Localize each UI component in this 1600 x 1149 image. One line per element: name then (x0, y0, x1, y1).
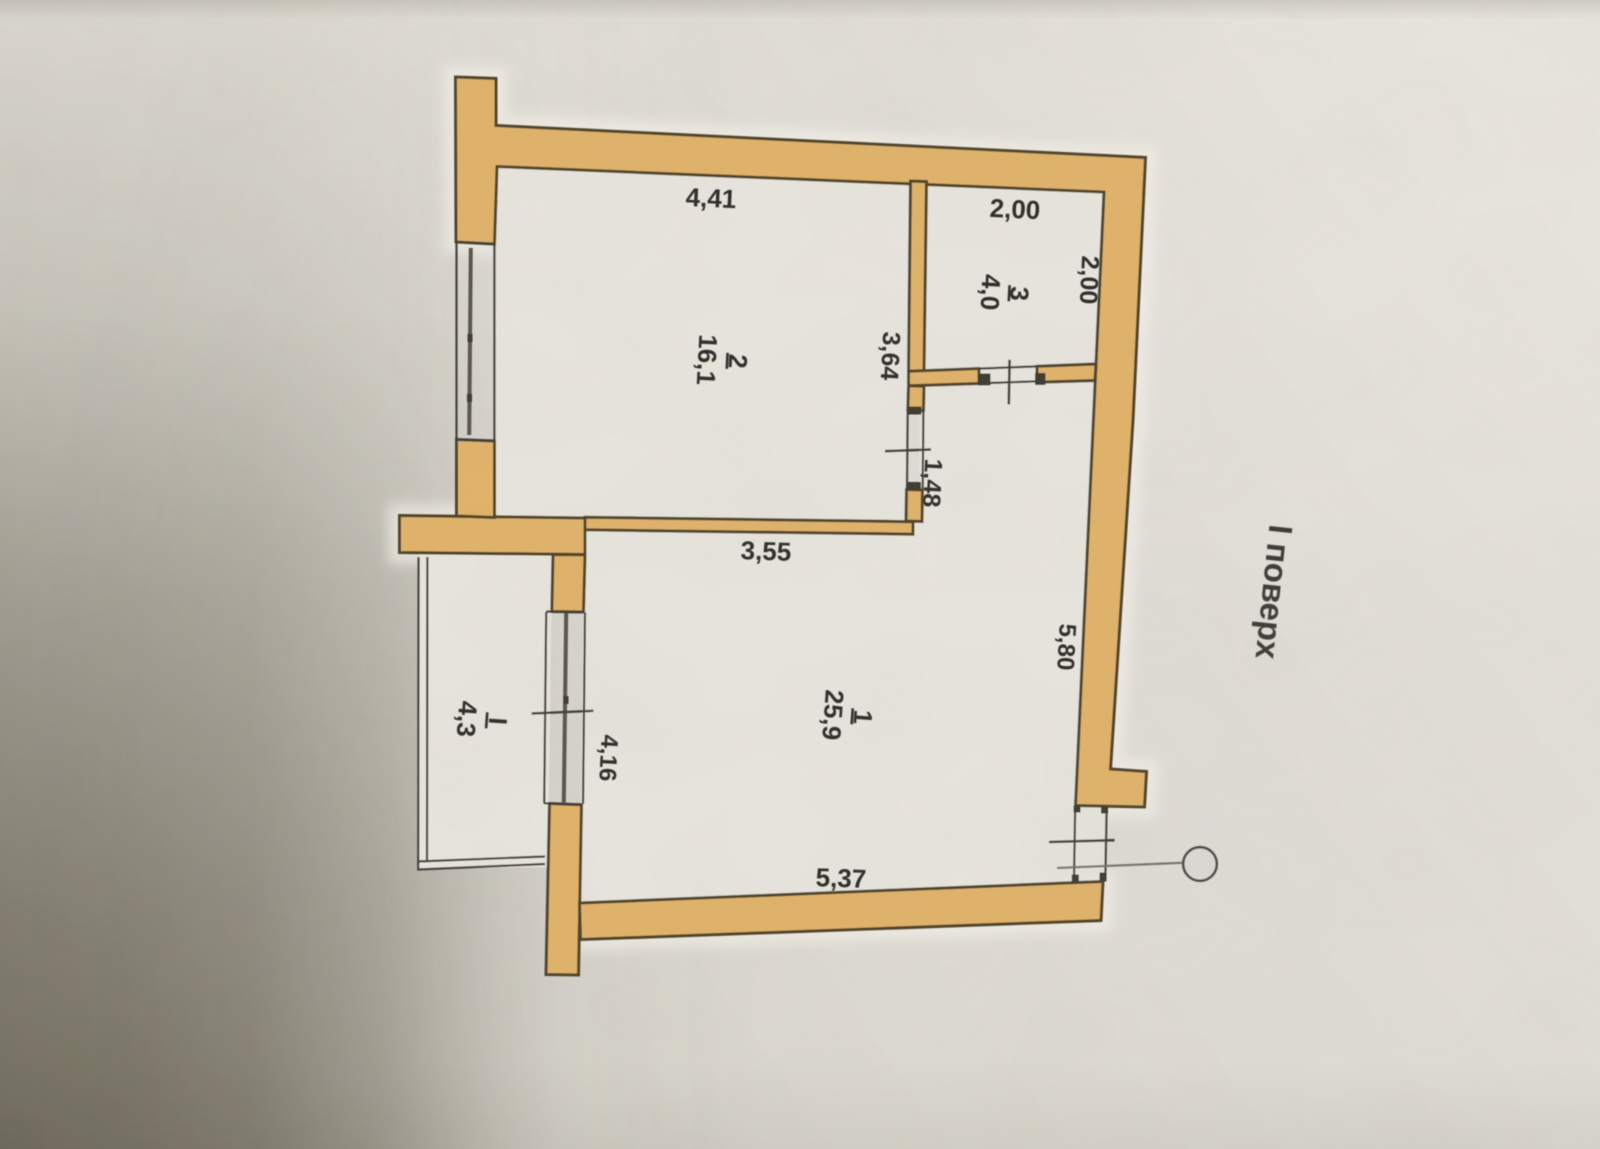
svg-text:2,00: 2,00 (989, 193, 1041, 225)
svg-text:4,0: 4,0 (975, 273, 1007, 311)
svg-text:4,41: 4,41 (685, 182, 737, 214)
svg-text:3,64: 3,64 (875, 331, 906, 381)
svg-text:5,80: 5,80 (1051, 623, 1080, 671)
svg-text:2,00: 2,00 (1074, 255, 1104, 305)
svg-text:1,48: 1,48 (917, 458, 948, 508)
svg-text:16,1: 16,1 (691, 334, 724, 386)
svg-text:4,3: 4,3 (451, 700, 483, 738)
svg-text:3,55: 3,55 (740, 535, 792, 567)
svg-text:5,37: 5,37 (815, 862, 867, 894)
svg-text:4,16: 4,16 (593, 734, 622, 782)
svg-text:25,9: 25,9 (816, 689, 849, 742)
